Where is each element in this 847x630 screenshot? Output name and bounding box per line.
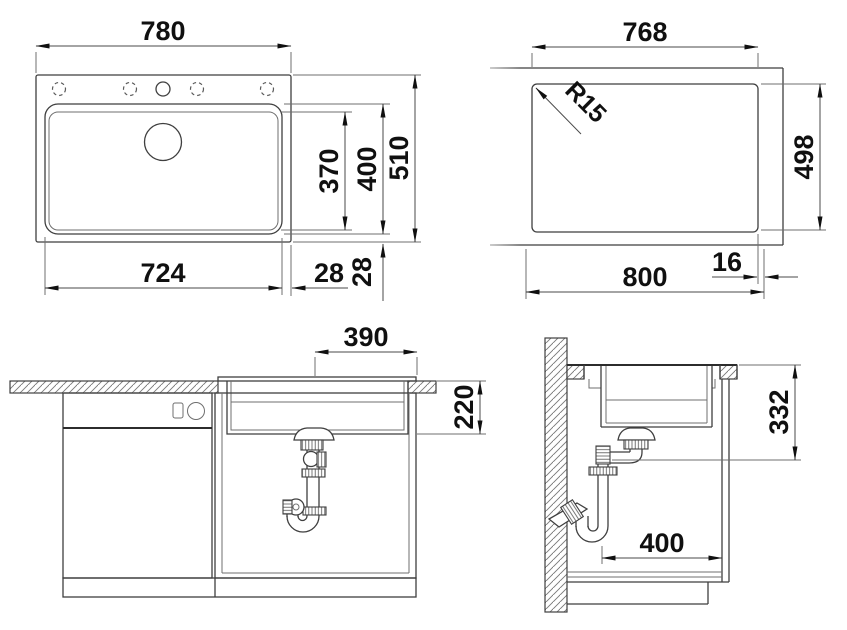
- dimension-cutout-width: 768: [532, 17, 758, 67]
- countertop-right: [408, 381, 436, 393]
- tap-hole-optional: [124, 83, 137, 96]
- dimension-cutout-depth: 498: [761, 84, 826, 230]
- plinth: [63, 578, 416, 597]
- dim-overall-width-label: 780: [140, 16, 185, 46]
- tap-hole-optional: [53, 83, 66, 96]
- dim-bowl-inner-length-label: 370: [314, 148, 344, 193]
- plan-view: 780 724 28 28 370 400: [36, 16, 421, 301]
- dim-edge-bottom-label: 28: [347, 257, 377, 287]
- cabinet-sink-base: [215, 393, 416, 578]
- appliance-control-rect-icon: [173, 403, 183, 418]
- sink-outline: [36, 75, 291, 242]
- appliance-control-knob-icon: [188, 403, 205, 420]
- dimension-edge-bottom: 28: [347, 244, 383, 301]
- tap-hole-main: [156, 82, 170, 96]
- sink-section-side: [584, 365, 720, 427]
- bowl-inner-outline: [49, 112, 278, 230]
- sink-installation-drawing: 780 724 28 28 370 400: [0, 0, 847, 630]
- wall-section: [545, 338, 567, 612]
- dim-min-cabinet-width-label: 800: [622, 262, 667, 292]
- countertop-outline: [490, 68, 783, 245]
- dim-bowl-installation-depth-label: 220: [449, 384, 479, 429]
- dim-edge-clearance-label: 16: [712, 247, 742, 277]
- dimension-overall-width: 780: [36, 16, 291, 73]
- dimension-edge-clearance: 16: [712, 234, 798, 284]
- dim-cutout-width-label: 768: [622, 17, 667, 47]
- dim-bowl-width-label: 724: [140, 258, 185, 288]
- sink-tank: [227, 381, 408, 434]
- dim-outlet-height-label: 332: [764, 389, 794, 434]
- dimension-bowl-width: 724: [45, 237, 282, 295]
- drain-circle: [145, 124, 182, 161]
- dim-edge-right-label: 28: [314, 258, 344, 288]
- cutout-outline: [532, 84, 758, 232]
- cabinet-side: [567, 379, 729, 604]
- sink-rim: [218, 377, 416, 381]
- tap-hole-optional: [191, 83, 204, 96]
- dim-bowl-outer-length-label: 400: [352, 146, 382, 191]
- cutout-view: 768 R15 498 800 16: [468, 17, 826, 299]
- drain-flange: [294, 428, 334, 440]
- dimension-edge-right: 28: [291, 245, 348, 296]
- dim-cutout-depth-label: 498: [789, 134, 819, 179]
- front-section-view: 390 220: [10, 322, 486, 597]
- cabinet-left: [63, 393, 212, 578]
- dimension-drain-center-offset: 390: [315, 322, 417, 376]
- dimension-cabinet-clearance: 400: [602, 528, 722, 564]
- dimension-corner-radius: R15: [536, 76, 612, 134]
- tap-holes: [53, 82, 274, 96]
- drain-trap-front: [283, 428, 334, 532]
- drain-flange-side: [618, 428, 655, 440]
- countertop-left: [10, 381, 218, 393]
- tap-hole-optional: [261, 83, 274, 96]
- dim-drain-center-offset-label: 390: [343, 322, 388, 352]
- countertop-fade: [468, 58, 520, 254]
- side-section-view: 332 400: [545, 338, 801, 612]
- dim-cabinet-clearance-label: 400: [639, 528, 684, 558]
- dim-overall-depth-label: 510: [384, 135, 414, 180]
